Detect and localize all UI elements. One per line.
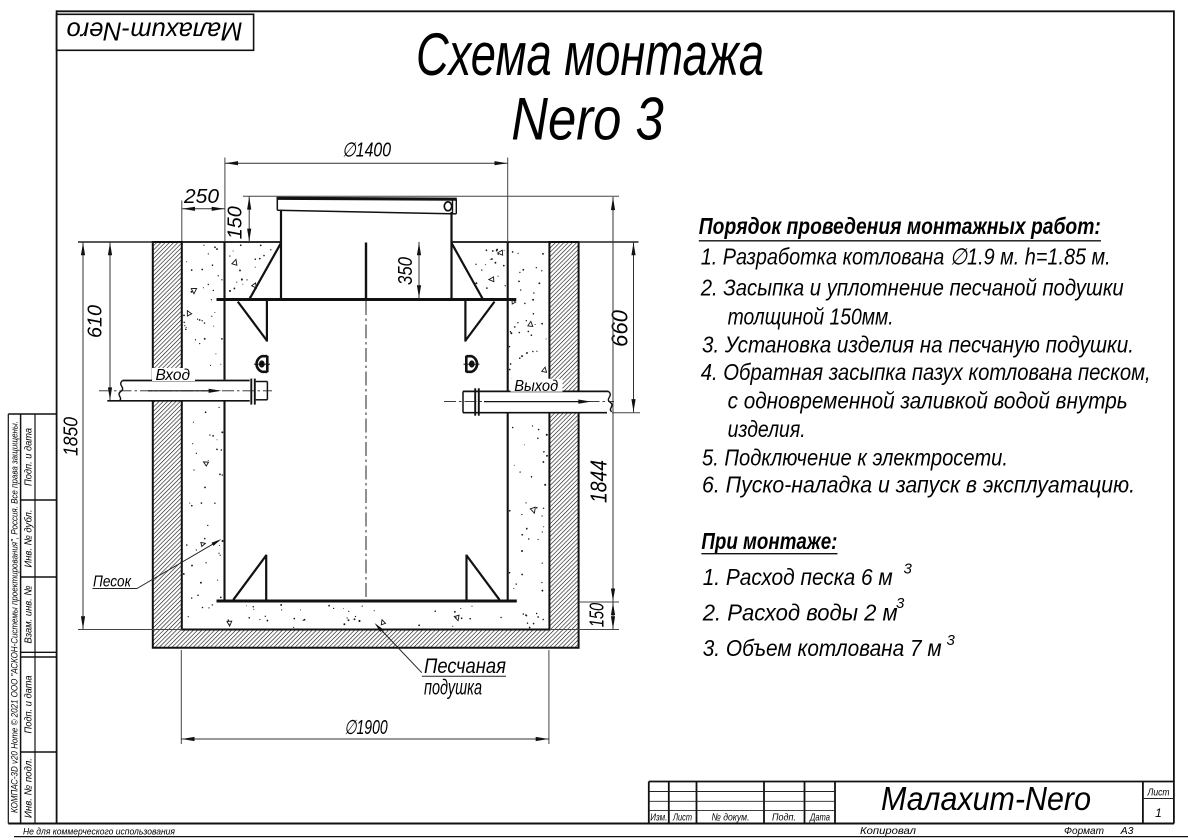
svg-text:Инв. № подл.: Инв. № подл. xyxy=(23,758,35,818)
svg-text:Изм.: Изм. xyxy=(650,811,667,823)
svg-text:Песчаная: Песчаная xyxy=(424,654,506,678)
svg-text:∅1900: ∅1900 xyxy=(344,717,388,739)
svg-text:610: 610 xyxy=(85,305,107,338)
svg-text:подушка: подушка xyxy=(424,675,482,699)
svg-text:Не для коммерческого использов: Не для коммерческого использования xyxy=(23,826,175,837)
svg-text:1850: 1850 xyxy=(61,417,83,456)
svg-text:с одновременной заливкой водой: с одновременной заливкой водой внутрь xyxy=(728,387,1128,413)
svg-text:Песок: Песок xyxy=(93,574,132,591)
svg-text:3. Объем котлована 7 м: 3. Объем котлована 7 м xyxy=(703,635,942,661)
svg-text:3: 3 xyxy=(904,561,913,578)
svg-text:3: 3 xyxy=(947,632,956,649)
svg-text:150: 150 xyxy=(587,603,609,628)
svg-text:Подп. и дата: Подп. и дата xyxy=(23,675,35,733)
svg-text:Схема монтажа: Схема монтажа xyxy=(416,20,764,88)
svg-text:5. Подключение к электросети.: 5. Подключение к электросети. xyxy=(702,444,1008,470)
svg-text:Nero 3: Nero 3 xyxy=(511,85,664,153)
svg-text:2. Засыпка и уплотнение песчан: 2. Засыпка и уплотнение песчаной подушки xyxy=(700,275,1124,301)
svg-text:3. Установка изделия на песчан: 3. Установка изделия на песчаную подушки… xyxy=(702,331,1134,357)
svg-text:Порядок проведения монтажных р: Порядок проведения монтажных работ: xyxy=(699,213,1101,239)
svg-text:6. Пуско-наладка и запуск в эк: 6. Пуско-наладка и запуск в эксплуатацию… xyxy=(702,472,1135,498)
svg-text:1. Расход песка 6 м: 1. Расход песка 6 м xyxy=(703,564,893,590)
svg-text:№ докум.: № докум. xyxy=(712,811,750,823)
svg-text:1. Разработка котлована ∅1.9 м: 1. Разработка котлована ∅1.9 м. h=1.85 м… xyxy=(701,244,1111,270)
svg-text:Взам. инв. №: Взам. инв. № xyxy=(23,586,35,644)
svg-text:Дата: Дата xyxy=(809,811,830,823)
svg-text:А3: А3 xyxy=(1120,825,1134,837)
svg-text:толщиной 150мм.: толщиной 150мм. xyxy=(728,303,894,329)
svg-text:Копировал: Копировал xyxy=(860,825,916,837)
svg-text:Выход: Выход xyxy=(514,378,558,395)
svg-text:2. Расход воды 2 м: 2. Расход воды 2 м xyxy=(702,599,898,625)
svg-text:Инв. № дубл.: Инв. № дубл. xyxy=(23,510,35,568)
svg-text:3: 3 xyxy=(896,595,905,612)
svg-text:Малахит-Nero: Малахит-Nero xyxy=(881,780,1091,817)
svg-text:Вход: Вход xyxy=(156,367,191,384)
svg-text:Формат: Формат xyxy=(1064,825,1104,837)
svg-text:Подп.: Подп. xyxy=(772,811,796,823)
svg-text:250: 250 xyxy=(183,186,219,208)
svg-text:1844: 1844 xyxy=(586,460,612,503)
svg-text:4. Обратная засыпка пазух котл: 4. Обратная засыпка пазух котлована песк… xyxy=(701,359,1151,385)
svg-text:Подп. и дата: Подп. и дата xyxy=(23,428,35,486)
svg-text:∅1400: ∅1400 xyxy=(342,140,391,162)
svg-text:150: 150 xyxy=(224,206,246,239)
svg-text:Лист: Лист xyxy=(672,811,692,823)
svg-text:Лист: Лист xyxy=(1147,787,1170,799)
svg-text:1: 1 xyxy=(1155,806,1162,820)
svg-text:При монтаже:: При монтаже: xyxy=(701,528,837,554)
svg-text:Малахит-Nero: Малахит-Nero xyxy=(67,16,243,46)
svg-text:660: 660 xyxy=(607,310,633,347)
svg-text:изделия.: изделия. xyxy=(728,416,806,442)
svg-text:КОМПАС-3D v20 Home © 2021 ООО: КОМПАС-3D v20 Home © 2021 ООО "АСКОН-Сис… xyxy=(10,421,21,813)
svg-text:350: 350 xyxy=(395,257,417,285)
